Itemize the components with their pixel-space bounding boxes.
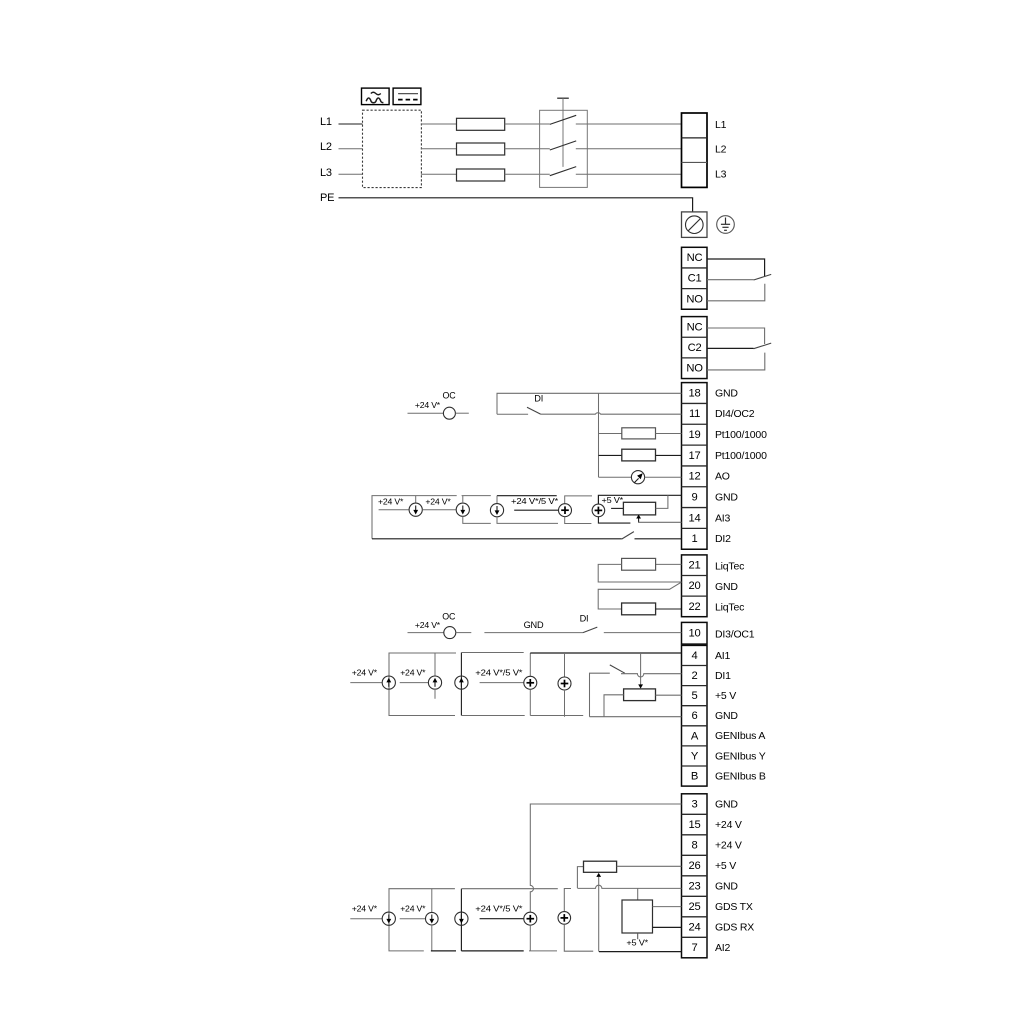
svg-text:+24 V*: +24 V* xyxy=(415,400,441,410)
svg-text:+5 V*: +5 V* xyxy=(602,495,624,505)
svg-text:+24 V*/5 V*: +24 V*/5 V* xyxy=(475,667,523,677)
svg-text:NC: NC xyxy=(687,321,703,333)
svg-text:10: 10 xyxy=(689,628,701,640)
svg-text:L3: L3 xyxy=(715,169,727,181)
svg-text:AI1: AI1 xyxy=(715,650,731,662)
svg-text:GND: GND xyxy=(524,620,544,630)
svg-text:+24 V*: +24 V* xyxy=(425,497,451,507)
svg-text:AI2: AI2 xyxy=(715,942,731,954)
svg-text:NO: NO xyxy=(686,293,703,305)
svg-text:GND: GND xyxy=(715,798,738,810)
svg-text:+24 V*/5 V*: +24 V*/5 V* xyxy=(511,496,559,506)
svg-text:L2: L2 xyxy=(320,141,332,153)
svg-text:GENIbus Y: GENIbus Y xyxy=(715,750,766,762)
svg-text:20: 20 xyxy=(689,580,701,592)
svg-text:+24 V*/5 V*: +24 V*/5 V* xyxy=(475,904,523,914)
svg-text:L3: L3 xyxy=(320,167,332,179)
svg-text:+24 V*: +24 V* xyxy=(400,904,426,914)
svg-text:25: 25 xyxy=(689,901,701,913)
svg-text:+24 V*: +24 V* xyxy=(352,667,378,677)
svg-text:GND: GND xyxy=(715,710,738,722)
svg-text:3: 3 xyxy=(692,798,698,810)
svg-text:NC: NC xyxy=(687,252,703,264)
svg-text:DI: DI xyxy=(580,613,589,623)
svg-text:AI3: AI3 xyxy=(715,512,731,524)
svg-text:DI4/OC2: DI4/OC2 xyxy=(715,408,755,420)
svg-text:+24 V*: +24 V* xyxy=(415,620,441,630)
svg-text:DI3/OC1: DI3/OC1 xyxy=(715,629,755,641)
svg-text:L2: L2 xyxy=(715,144,727,156)
svg-text:DI: DI xyxy=(534,393,543,403)
svg-text:6: 6 xyxy=(692,710,698,722)
svg-text:+24 V*: +24 V* xyxy=(378,497,404,507)
svg-text:+5 V*: +5 V* xyxy=(626,938,648,948)
svg-text:21: 21 xyxy=(689,560,701,572)
svg-text:1: 1 xyxy=(692,533,698,545)
svg-text:9: 9 xyxy=(692,492,698,504)
svg-text:+24 V: +24 V xyxy=(715,839,742,851)
svg-text:19: 19 xyxy=(689,429,701,441)
svg-text:22: 22 xyxy=(689,601,701,613)
svg-text:OC: OC xyxy=(442,612,456,622)
svg-text:8: 8 xyxy=(692,839,698,851)
svg-text:7: 7 xyxy=(692,942,698,954)
svg-text:+24 V*: +24 V* xyxy=(400,667,426,677)
svg-text:AO: AO xyxy=(715,471,730,483)
svg-text:14: 14 xyxy=(689,512,701,524)
svg-text:24: 24 xyxy=(689,921,701,933)
svg-text:11: 11 xyxy=(689,408,700,420)
svg-text:GENIbus A: GENIbus A xyxy=(715,730,765,742)
svg-text:18: 18 xyxy=(689,387,701,399)
svg-text:NO: NO xyxy=(686,363,703,375)
svg-text:17: 17 xyxy=(689,450,701,462)
svg-text:GND: GND xyxy=(715,880,738,892)
svg-text:A: A xyxy=(691,730,699,742)
svg-text:5: 5 xyxy=(692,690,698,702)
svg-text:+5 V: +5 V xyxy=(715,860,736,872)
svg-text:+5 V: +5 V xyxy=(715,690,736,702)
svg-text:LiqTec: LiqTec xyxy=(715,561,744,573)
svg-text:OC: OC xyxy=(443,391,457,401)
svg-text:DI1: DI1 xyxy=(715,670,731,682)
svg-text:GND: GND xyxy=(715,387,738,399)
svg-text:4: 4 xyxy=(692,650,698,662)
svg-text:L1: L1 xyxy=(715,119,727,131)
svg-text:Y: Y xyxy=(691,750,699,762)
svg-text:GND: GND xyxy=(715,491,738,503)
svg-text:DI2: DI2 xyxy=(715,533,731,545)
svg-text:C2: C2 xyxy=(688,342,702,354)
svg-text:PE: PE xyxy=(320,192,334,204)
svg-text:GDS TX: GDS TX xyxy=(715,901,753,913)
svg-text:GND: GND xyxy=(715,581,738,593)
svg-text:L1: L1 xyxy=(320,116,332,128)
svg-text:23: 23 xyxy=(689,880,701,892)
svg-text:GDS RX: GDS RX xyxy=(715,921,754,933)
svg-text:GENIbus B: GENIbus B xyxy=(715,770,766,782)
svg-text:+24 V: +24 V xyxy=(715,819,742,831)
svg-text:Pt100/1000: Pt100/1000 xyxy=(715,429,767,441)
svg-text:LiqTec: LiqTec xyxy=(715,602,744,614)
svg-text:+24 V*: +24 V* xyxy=(352,904,378,914)
svg-text:B: B xyxy=(691,770,698,782)
svg-text:2: 2 xyxy=(692,670,698,682)
svg-text:Pt100/1000: Pt100/1000 xyxy=(715,450,767,462)
svg-text:C1: C1 xyxy=(688,273,702,285)
svg-text:15: 15 xyxy=(689,819,701,831)
svg-text:12: 12 xyxy=(689,471,701,483)
svg-text:26: 26 xyxy=(689,860,701,872)
